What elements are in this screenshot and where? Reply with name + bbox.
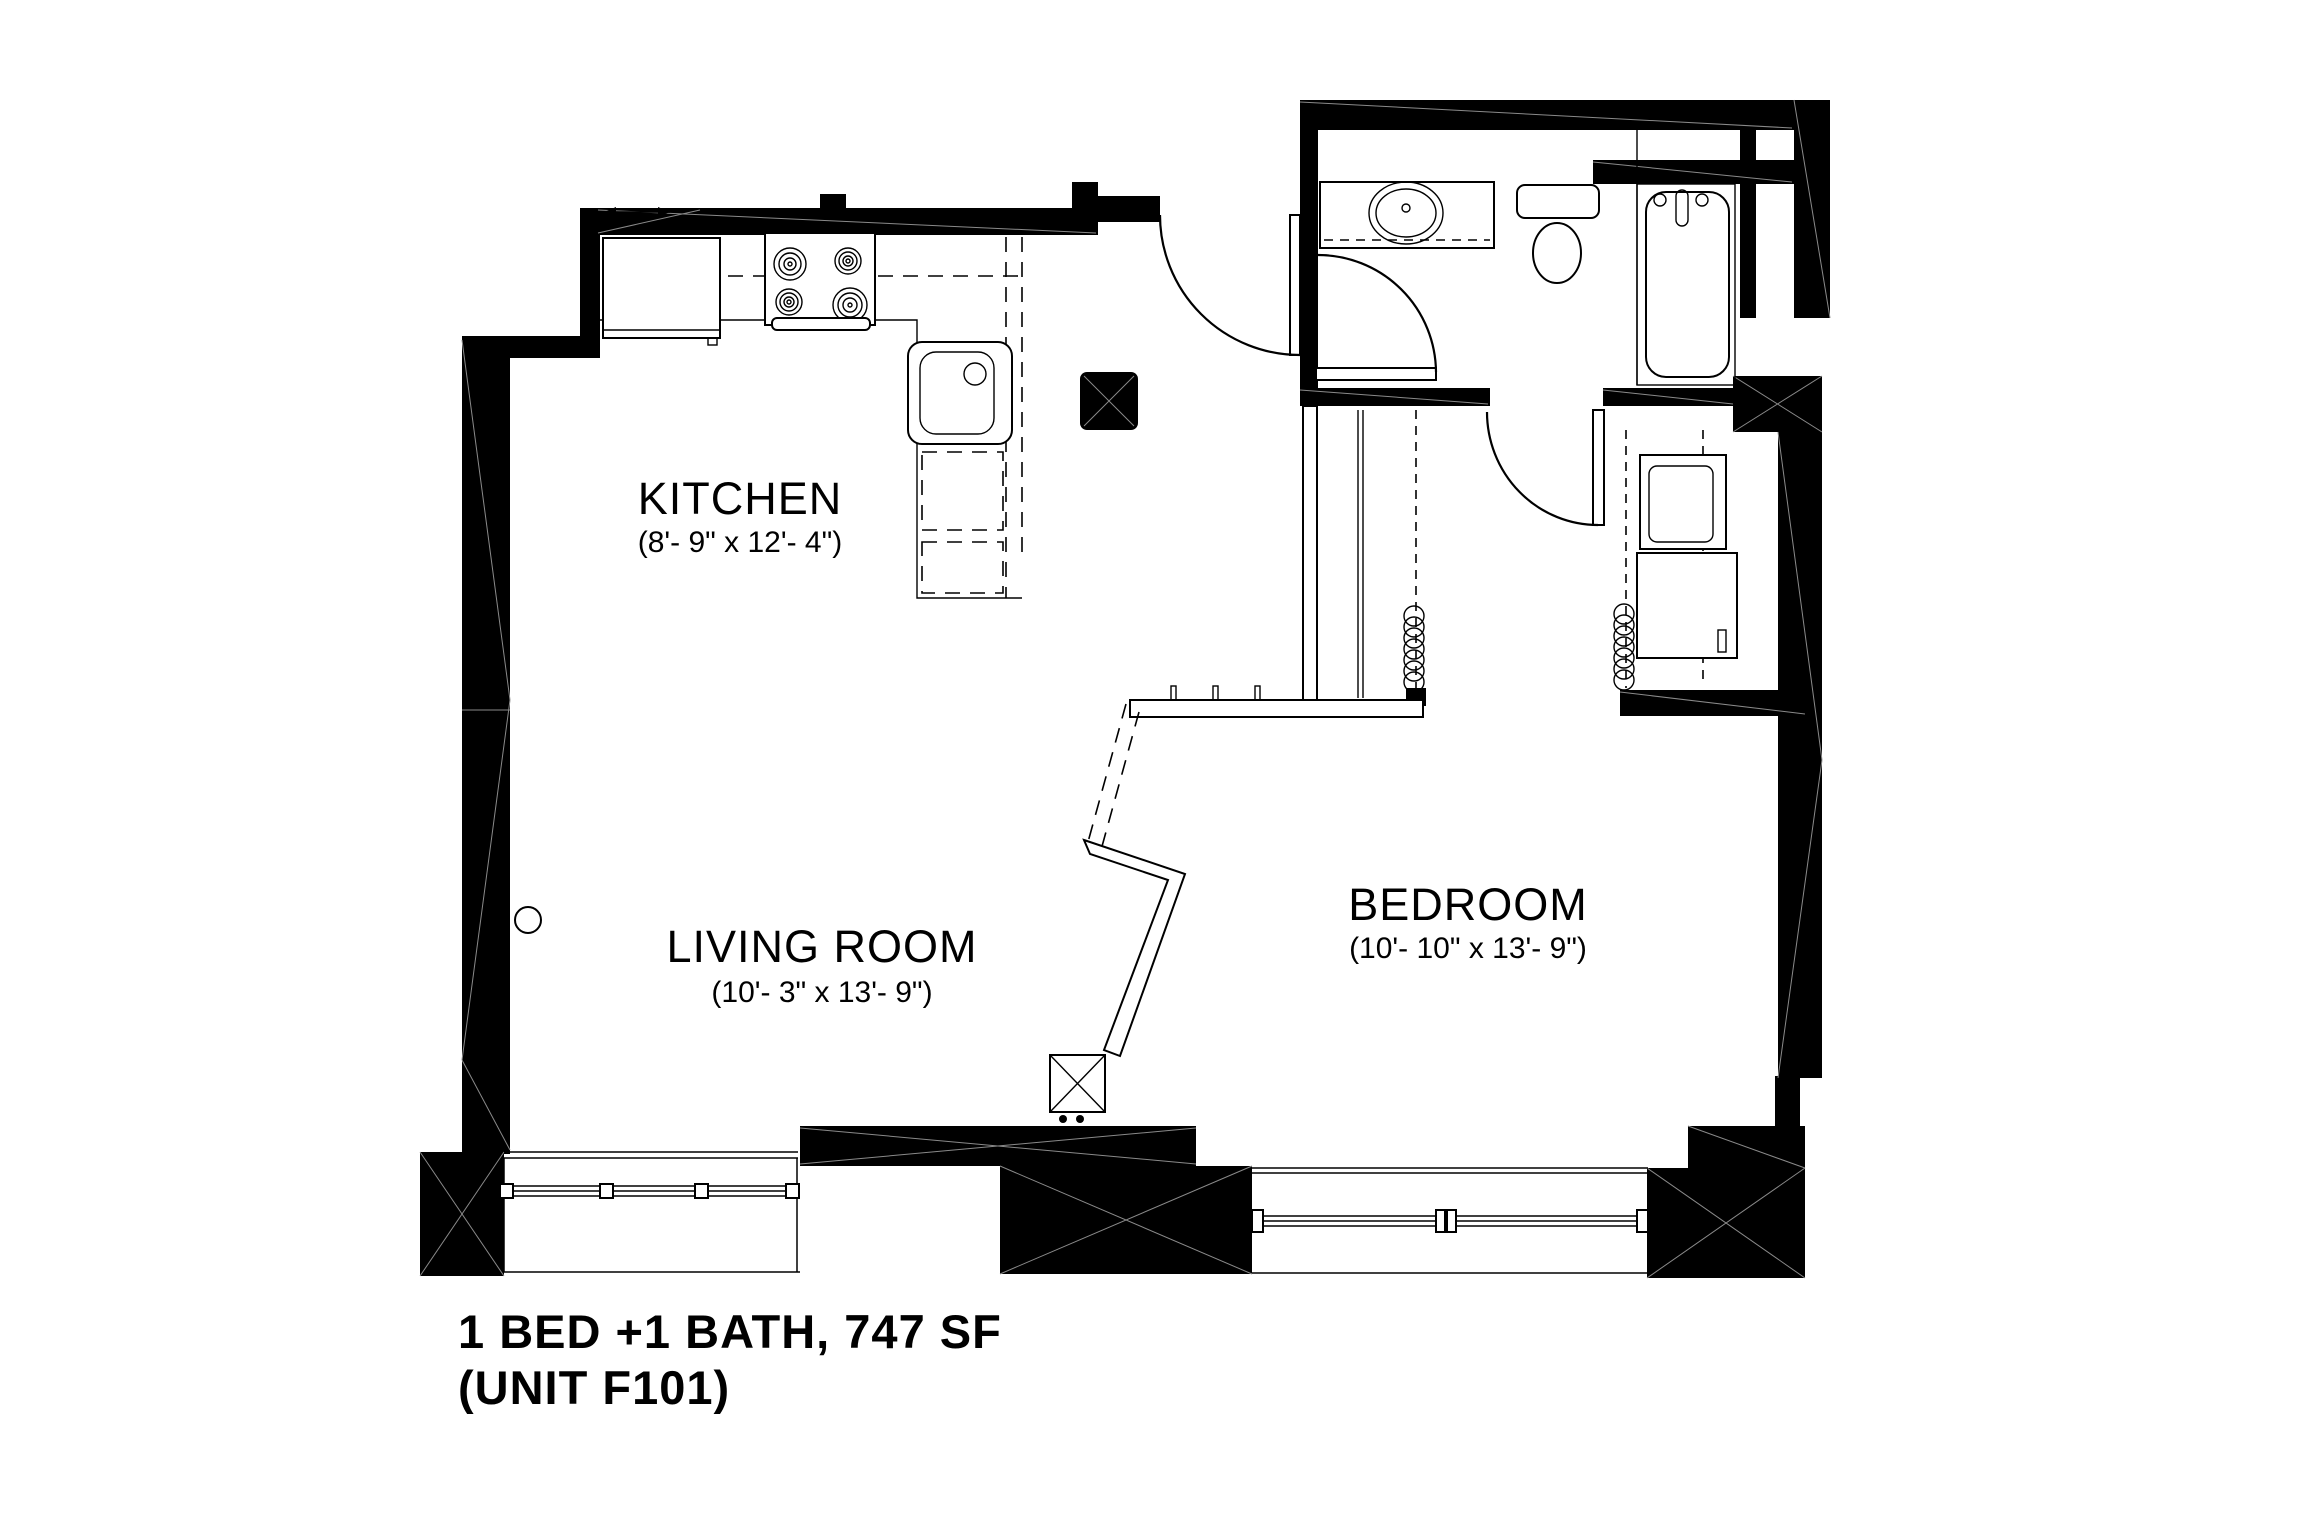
kitchen-label: KITCHEN: [638, 473, 843, 524]
bedroom-label: BEDROOM: [1348, 879, 1588, 930]
living-room-dims: (10'- 3" x 13'- 9"): [711, 976, 932, 1009]
refrigerator-icon: [603, 238, 720, 345]
wall-circle-marker: [515, 907, 541, 933]
zigzag-wall: [1084, 840, 1185, 1056]
living-room-label: LIVING ROOM: [666, 921, 977, 972]
mechanical-chase-icon: [1050, 1055, 1105, 1123]
closet-rod-hangers-icon: [1404, 410, 1424, 698]
washer-dryer-icon: [1614, 430, 1737, 690]
unit-title-line2: (UNIT F101): [458, 1361, 730, 1414]
bedroom-window-icon: [1252, 1168, 1648, 1273]
hall-south-wall: [1130, 700, 1423, 717]
hall-and-closets: [1303, 406, 1737, 701]
floor-plan-page: KITCHEN (8'- 9" x 12'- 4") LIVING ROOM (…: [0, 0, 2318, 1540]
living-room-window-icon: [500, 1152, 800, 1272]
vanity-sink-icon: [1320, 182, 1494, 248]
living-bedroom-partition: [1084, 686, 1423, 1056]
closet-wall: [1303, 406, 1317, 701]
kitchen-sink-icon: [908, 342, 1012, 444]
range-icon: [765, 233, 875, 330]
kitchen-dims: (8'- 9" x 12'- 4"): [638, 526, 842, 559]
toilet-icon: [1517, 185, 1599, 283]
entry-door-swing-icon: [1160, 215, 1300, 355]
bedroom-dims: (10'- 10" x 13'- 9"): [1349, 932, 1587, 965]
unit-title-line1: 1 BED +1 BATH, 747 SF: [458, 1305, 1002, 1358]
bedroom-door-swing-icon: [1487, 410, 1604, 525]
bathroom-door-swing-icon: [1316, 255, 1436, 380]
floor-plan-drawing: KITCHEN (8'- 9" x 12'- 4") LIVING ROOM (…: [0, 0, 2318, 1540]
